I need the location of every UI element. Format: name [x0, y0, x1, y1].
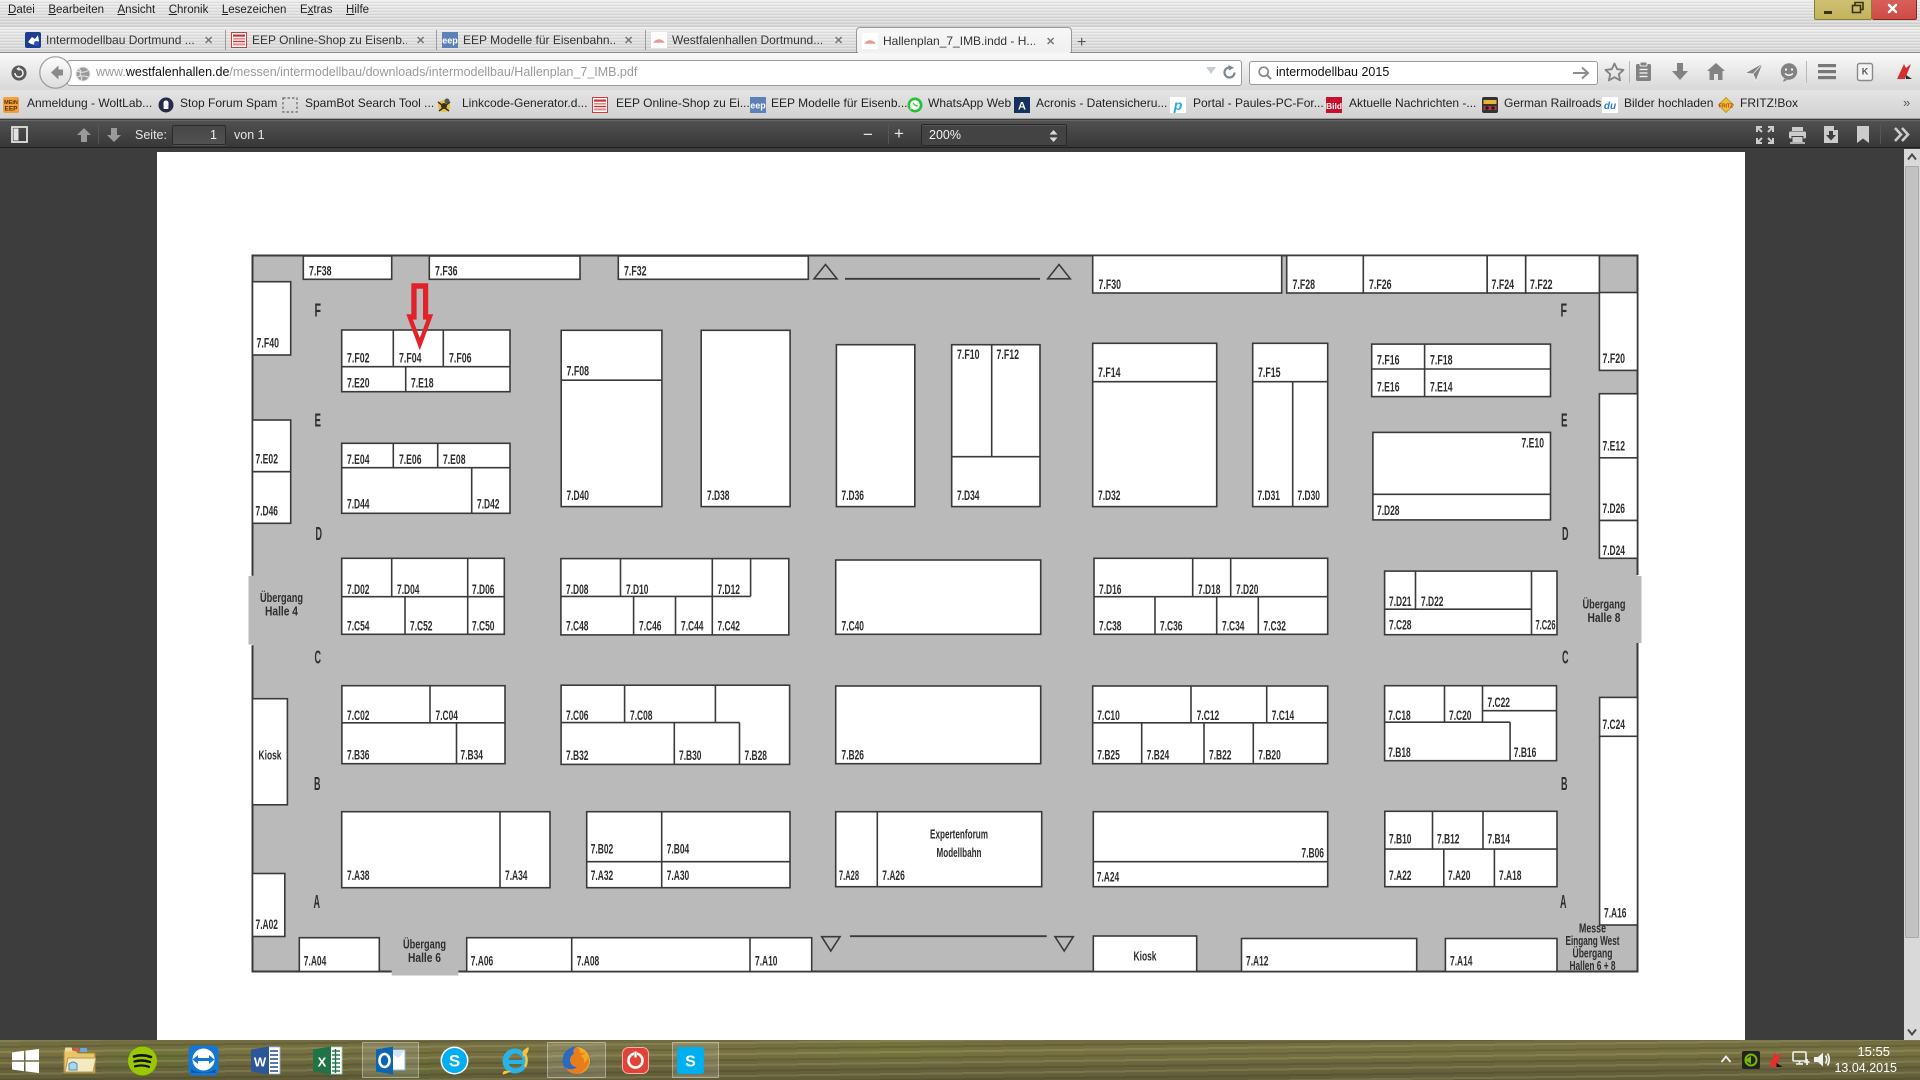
svg-text:7.C18: 7.C18: [1388, 707, 1411, 723]
svg-text:Übergang: Übergang: [260, 590, 303, 605]
svg-text:7.A06: 7.A06: [471, 952, 494, 968]
svg-text:7.B34: 7.B34: [461, 746, 484, 762]
svg-text:7.A34: 7.A34: [505, 867, 528, 883]
svg-text:7.C40: 7.C40: [842, 617, 865, 633]
svg-text:7.D38: 7.D38: [707, 487, 730, 503]
svg-text:p: p: [1173, 97, 1183, 113]
svg-text:7.F14: 7.F14: [1098, 364, 1121, 380]
svg-text:7.B18: 7.B18: [1388, 744, 1411, 760]
svg-text:7.E08: 7.E08: [443, 451, 466, 467]
svg-text:B: B: [1561, 774, 1568, 794]
svg-text:7.C12: 7.C12: [1197, 707, 1220, 723]
svg-text:Übergang: Übergang: [403, 937, 446, 952]
svg-text:7.C32: 7.C32: [1264, 617, 1287, 633]
svg-text:Kiosk: Kiosk: [259, 748, 282, 762]
svg-text:7.B06: 7.B06: [1302, 844, 1325, 860]
svg-text:7.D30: 7.D30: [1298, 487, 1321, 503]
svg-text:7.C54: 7.C54: [347, 617, 370, 633]
svg-text:7.E02: 7.E02: [256, 451, 279, 467]
svg-text:du: du: [1604, 101, 1616, 112]
svg-text:7.D24: 7.D24: [1603, 542, 1626, 558]
svg-text:7.D20: 7.D20: [1236, 581, 1259, 597]
svg-text:7.E16: 7.E16: [1377, 379, 1400, 395]
svg-text:X: X: [318, 1055, 327, 1070]
svg-text:7.F08: 7.F08: [567, 363, 590, 379]
svg-text:7.C14: 7.C14: [1272, 707, 1295, 723]
svg-text:E: E: [315, 411, 322, 431]
svg-text:D: D: [1562, 524, 1569, 544]
svg-text:eep: eep: [750, 101, 766, 111]
svg-text:Modellbahn: Modellbahn: [937, 846, 982, 860]
svg-text:7.B14: 7.B14: [1488, 830, 1511, 846]
svg-text:A: A: [314, 892, 321, 912]
svg-text:7.C50: 7.C50: [472, 617, 495, 633]
svg-text:7.B24: 7.B24: [1147, 746, 1170, 762]
svg-text:7.D12: 7.D12: [718, 581, 741, 597]
svg-text:A: A: [1018, 101, 1026, 113]
svg-text:Halle 4: Halle 4: [265, 605, 298, 619]
svg-text:C: C: [315, 648, 322, 668]
svg-text:7.A10: 7.A10: [755, 952, 778, 968]
svg-text:7.B20: 7.B20: [1258, 746, 1281, 762]
svg-text:7.F16: 7.F16: [1377, 352, 1400, 368]
svg-text:Expertenforum: Expertenforum: [930, 828, 988, 842]
svg-text:7.B10: 7.B10: [1389, 830, 1412, 846]
svg-text:7.E18: 7.E18: [411, 375, 434, 391]
svg-text:7.C02: 7.C02: [347, 707, 370, 723]
svg-text:7.D28: 7.D28: [1377, 502, 1400, 518]
svg-text:7.D31: 7.D31: [1258, 487, 1281, 503]
svg-text:7.A04: 7.A04: [304, 952, 327, 968]
svg-text:D: D: [316, 524, 323, 544]
svg-text:7.A12: 7.A12: [1246, 952, 1269, 968]
svg-text:7.F22: 7.F22: [1530, 276, 1553, 292]
svg-text:7.B12: 7.B12: [1437, 830, 1460, 846]
svg-text:7.E20: 7.E20: [347, 375, 370, 391]
svg-text:7.E04: 7.E04: [347, 451, 370, 467]
svg-text:7.D26: 7.D26: [1603, 500, 1626, 516]
svg-text:7.B04: 7.B04: [667, 841, 690, 857]
svg-text:7.F26: 7.F26: [1369, 276, 1392, 292]
svg-text:7.C52: 7.C52: [410, 617, 433, 633]
svg-text:7.A14: 7.A14: [1450, 952, 1473, 968]
svg-text:7.F04: 7.F04: [399, 349, 422, 365]
svg-text:7.A20: 7.A20: [1448, 867, 1471, 883]
svg-text:7.D08: 7.D08: [566, 581, 589, 597]
svg-text:7.C24: 7.C24: [1603, 716, 1626, 732]
svg-text:F: F: [1561, 301, 1568, 321]
svg-text:A: A: [1560, 892, 1567, 912]
svg-text:7.D10: 7.D10: [626, 581, 649, 597]
svg-text:7.D40: 7.D40: [567, 487, 590, 503]
svg-text:7.C26: 7.C26: [1536, 617, 1556, 633]
svg-text:7.C08: 7.C08: [630, 707, 653, 723]
svg-text:7.C10: 7.C10: [1097, 707, 1120, 723]
svg-text:7.F12: 7.F12: [997, 346, 1020, 362]
svg-text:7.D44: 7.D44: [347, 496, 370, 512]
svg-text:7.F32: 7.F32: [624, 263, 647, 279]
svg-text:7.C44: 7.C44: [681, 617, 704, 633]
svg-text:7.D16: 7.D16: [1099, 581, 1122, 597]
svg-text:7.E14: 7.E14: [1430, 379, 1453, 395]
svg-text:7.D34: 7.D34: [957, 487, 980, 503]
svg-text:7.A26: 7.A26: [882, 867, 905, 883]
svg-text:Übergang: Übergang: [1583, 597, 1626, 612]
svg-text:7.F02: 7.F02: [347, 349, 370, 365]
svg-text:7.A32: 7.A32: [591, 867, 614, 883]
svg-text:7.D06: 7.D06: [472, 581, 495, 597]
svg-text:7.C46: 7.C46: [639, 617, 662, 633]
svg-text:7.B30: 7.B30: [679, 747, 702, 763]
svg-text:7.C34: 7.C34: [1222, 617, 1245, 633]
svg-text:7.F10: 7.F10: [957, 346, 980, 362]
svg-text:W: W: [254, 1055, 267, 1070]
svg-text:7.B28: 7.B28: [745, 747, 768, 763]
svg-text:7.A22: 7.A22: [1389, 867, 1412, 883]
svg-text:7.D32: 7.D32: [1098, 487, 1121, 503]
svg-text:7.C06: 7.C06: [566, 707, 589, 723]
svg-text:7.D46: 7.D46: [256, 503, 279, 519]
svg-text:7.C20: 7.C20: [1449, 707, 1472, 723]
svg-text:7.C28: 7.C28: [1389, 617, 1412, 633]
svg-text:7.F28: 7.F28: [1293, 276, 1316, 292]
svg-text:7.C38: 7.C38: [1099, 617, 1122, 633]
svg-text:7.D36: 7.D36: [842, 487, 865, 503]
svg-text:S: S: [685, 1054, 696, 1071]
svg-text:B: B: [314, 774, 321, 794]
svg-text:7.F36: 7.F36: [435, 263, 458, 279]
svg-text:7.C36: 7.C36: [1160, 617, 1183, 633]
svg-text:7.C48: 7.C48: [566, 617, 589, 633]
svg-text:Halle 6: Halle 6: [408, 951, 441, 965]
svg-text:K: K: [1862, 67, 1869, 77]
svg-text:7.F40: 7.F40: [257, 335, 280, 351]
svg-text:7.C42: 7.C42: [718, 617, 741, 633]
svg-text:eep: eep: [442, 36, 458, 46]
svg-text:EEP: EEP: [4, 106, 18, 113]
svg-text:7.A24: 7.A24: [1097, 869, 1120, 885]
svg-text:7.F18: 7.F18: [1430, 352, 1453, 368]
svg-text:7.F20: 7.F20: [1603, 350, 1626, 366]
svg-text:E: E: [1561, 411, 1568, 431]
svg-text:7.A08: 7.A08: [577, 952, 600, 968]
svg-text:7.E06: 7.E06: [399, 451, 422, 467]
svg-text:7.B16: 7.B16: [1514, 744, 1537, 760]
svg-text:7.B36: 7.B36: [347, 746, 370, 762]
svg-text:7.F06: 7.F06: [449, 349, 472, 365]
svg-text:7.A16: 7.A16: [1604, 905, 1627, 921]
svg-text:7.B22: 7.B22: [1209, 746, 1232, 762]
svg-text:7.D42: 7.D42: [477, 496, 500, 512]
svg-text:S: S: [449, 1052, 460, 1071]
svg-text:7.E12: 7.E12: [1603, 438, 1626, 454]
svg-text:FRITZ: FRITZ: [1719, 104, 1733, 110]
svg-text:7.A38: 7.A38: [347, 867, 370, 883]
svg-text:7.A30: 7.A30: [667, 867, 690, 883]
svg-text:F: F: [315, 301, 322, 321]
svg-text:7.C22: 7.C22: [1488, 694, 1511, 710]
svg-text:7.B26: 7.B26: [842, 746, 865, 762]
svg-text:7.B02: 7.B02: [591, 841, 614, 857]
svg-text:Halle 8: Halle 8: [1588, 611, 1621, 625]
svg-text:7.D04: 7.D04: [397, 581, 420, 597]
svg-text:7.C04: 7.C04: [436, 707, 459, 723]
svg-text:Kiosk: Kiosk: [1134, 950, 1157, 964]
svg-text:7.F15: 7.F15: [1258, 364, 1281, 380]
svg-text:7.D21: 7.D21: [1389, 593, 1412, 609]
svg-text:7.F30: 7.F30: [1099, 276, 1122, 292]
svg-text:7.D22: 7.D22: [1421, 593, 1444, 609]
svg-text:7.D18: 7.D18: [1198, 581, 1221, 597]
svg-text:C: C: [1562, 648, 1569, 668]
svg-text:Hallen 6 + 8: Hallen 6 + 8: [1570, 959, 1616, 973]
svg-text:Bild: Bild: [1326, 101, 1342, 111]
svg-text:7.B25: 7.B25: [1097, 746, 1120, 762]
svg-text:7.E10: 7.E10: [1522, 435, 1545, 451]
svg-text:7.A02: 7.A02: [256, 916, 279, 932]
svg-text:7.D02: 7.D02: [347, 581, 370, 597]
svg-text:7.A28: 7.A28: [839, 867, 859, 883]
svg-text:7.A18: 7.A18: [1499, 867, 1522, 883]
svg-text:7.B32: 7.B32: [566, 747, 589, 763]
svg-text:7.F24: 7.F24: [1492, 276, 1515, 292]
svg-text:7.F38: 7.F38: [309, 263, 332, 279]
